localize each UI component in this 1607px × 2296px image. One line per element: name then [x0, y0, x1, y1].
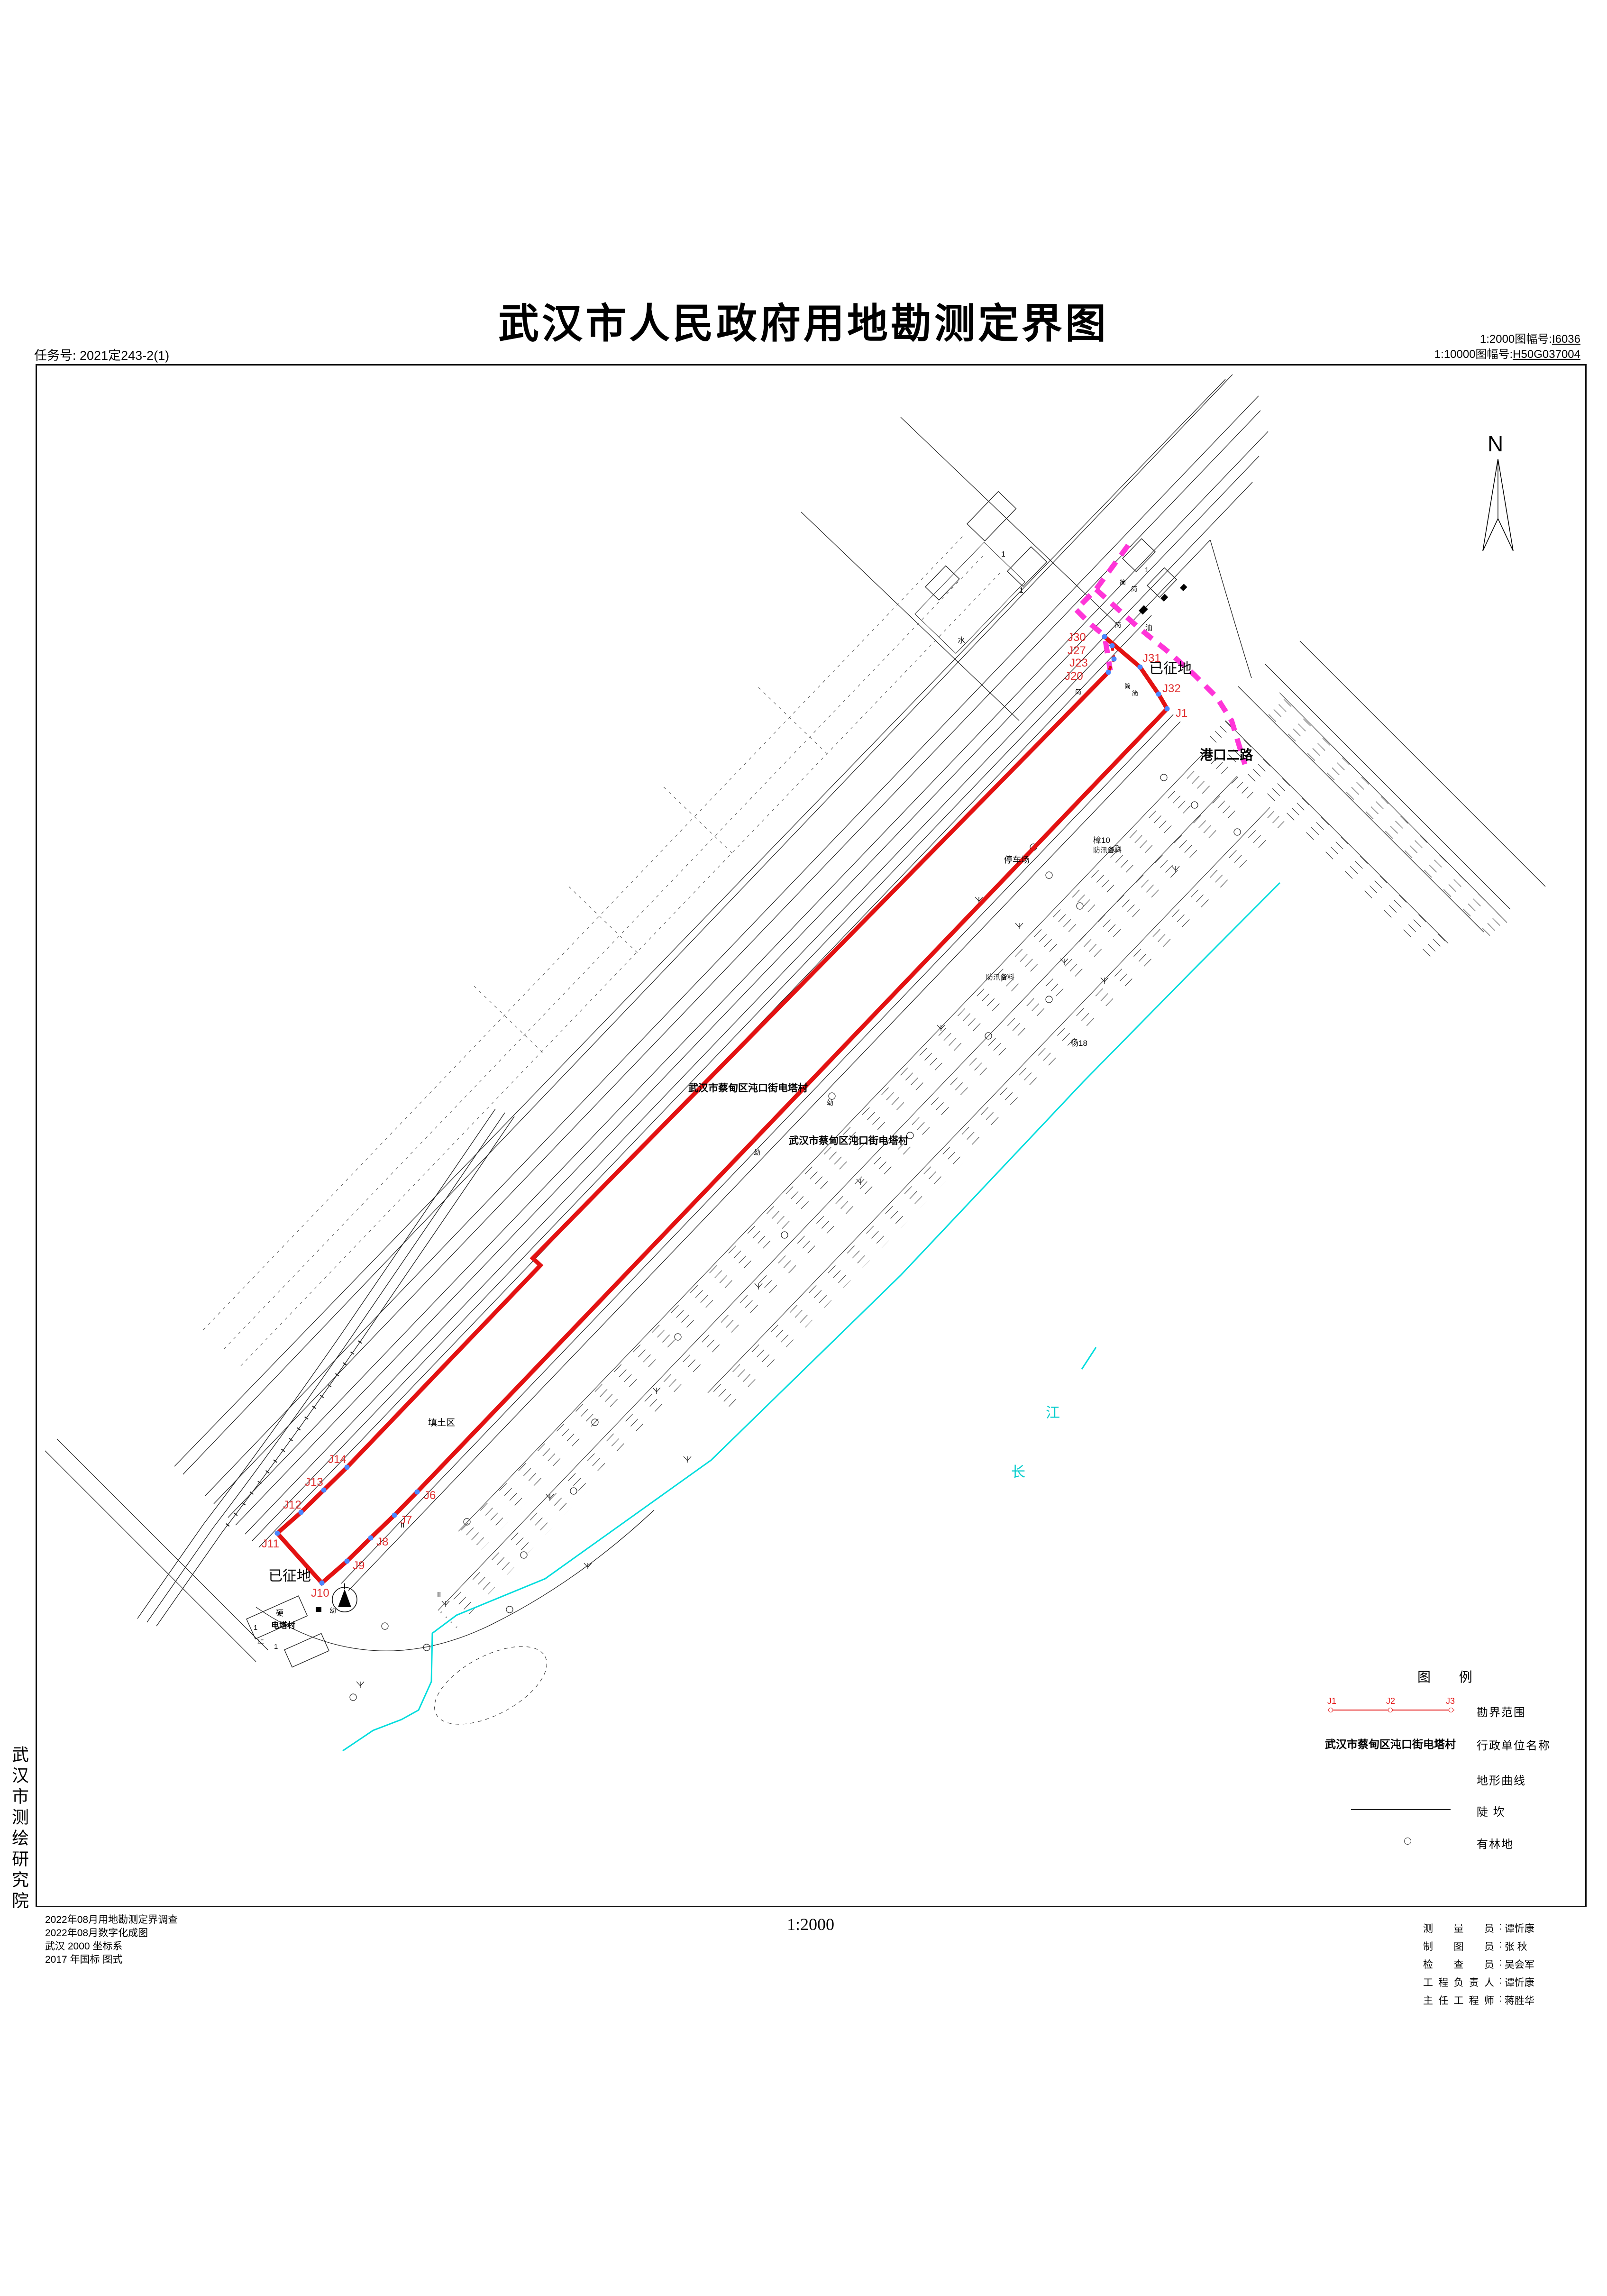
map-label: 简	[1075, 688, 1081, 695]
map-label: 简	[1115, 622, 1121, 629]
task-number: 任务号: 2021定243-2(1)	[34, 345, 169, 364]
boundary-vertex-label: J9	[353, 1559, 365, 1572]
map-label: 防汛备料	[1093, 846, 1122, 854]
boundary-vertex-label: J13	[305, 1476, 323, 1489]
map-label: 樟10	[1093, 836, 1110, 845]
survey-boundary	[277, 637, 1167, 1583]
north-arrow: N	[1483, 431, 1513, 551]
map-label: 1	[1001, 550, 1005, 558]
map-label: 武汉市蔡甸区沌口街电塔村	[688, 1082, 808, 1094]
boundary-vertex	[415, 1490, 420, 1495]
boundary-vertex	[1138, 665, 1143, 670]
map-label: 填土区	[428, 1418, 455, 1428]
map-label: 幼	[329, 1607, 336, 1614]
boundary-vertex	[1102, 634, 1107, 640]
map-label: 已征地	[1149, 661, 1192, 677]
map-label: 水	[958, 636, 965, 645]
organization-name: 武汉市测绘研究院	[7, 1746, 31, 1912]
sheet-numbers: 1:2000图幅号:I6036 1:10000图幅号:H50G037004	[1434, 332, 1580, 362]
map-label: 幼	[827, 1099, 833, 1107]
map-label: 已征地	[268, 1568, 311, 1584]
credit-row: 检 查 员:吴会军	[1423, 1957, 1584, 1971]
credit-row: 测 量 员:谭忻康	[1423, 1921, 1584, 1935]
map-label: II	[401, 1521, 404, 1529]
boundary-vertex-label: J11	[262, 1537, 279, 1550]
map-label: 简	[1131, 585, 1137, 593]
map-label: 止	[257, 1637, 264, 1645]
map-scale: 1:2000	[749, 1914, 872, 1934]
map-label: 电塔村	[271, 1620, 295, 1630]
map-label: 1	[274, 1643, 278, 1651]
boundary-vertex-label: J32	[1162, 682, 1181, 695]
boundary-vertex-label: J27	[1068, 644, 1086, 657]
map-label: 简	[1124, 683, 1131, 690]
sheet-number-10000: 1:10000图幅号:H50G037004	[1434, 347, 1580, 362]
boundary-vertex-label: J8	[376, 1536, 388, 1548]
boundary-sample: J1 J2 J3	[1327, 1701, 1460, 1720]
boundary-vertex	[392, 1513, 397, 1518]
boundary-vertex-label: J12	[283, 1499, 301, 1511]
boundary-vertex	[1112, 657, 1117, 662]
map-label: 杨18	[1070, 1039, 1087, 1048]
boundary-vertex	[1106, 670, 1111, 675]
sheet-number-2000: 1:2000图幅号:I6036	[1434, 332, 1580, 347]
map-label: 武汉市蔡甸区沌口街电塔村	[789, 1135, 908, 1146]
solid-structures	[316, 584, 1187, 1612]
survey-map-sheet: { "page": { "title": "武汉市人民政府用地勘测定界图", "…	[0, 0, 1607, 2296]
legend: 图 例 J1 J2 J3 勘界范围 武汉市蔡甸区沌口街电塔村 行政单位名称 地形…	[1313, 1667, 1588, 1857]
boundary-vertex	[275, 1531, 280, 1536]
boundary-vertex	[368, 1536, 374, 1541]
credits-block: 测 量 员:谭忻康制 图 员:张 秋检 查 员:吴会军工程负责人:谭忻康主任工程…	[1423, 1921, 1584, 2011]
map-label: 防汛备料	[986, 973, 1014, 981]
map-label: II	[437, 1591, 441, 1599]
boundary-points-layer: J1J32J31J30J27J23J20J14J13J12J11J10J9J8J…	[262, 631, 1187, 1600]
boundary-vertex	[1165, 706, 1170, 712]
boundary-vertex	[1110, 643, 1115, 649]
boundary-vertex	[1156, 692, 1161, 697]
boundary-vertex	[345, 1559, 350, 1564]
boundary-vertex-label: J10	[311, 1587, 329, 1600]
boundary-vertex-label: J6	[424, 1489, 436, 1502]
map-label: 江	[1046, 1405, 1060, 1421]
credit-row: 制 图 员:张 秋	[1423, 1939, 1584, 1953]
legend-title: 图 例	[1417, 1667, 1485, 1686]
slope-hatching	[438, 693, 1507, 1628]
map-label: 幼	[754, 1149, 760, 1156]
svg-text:N: N	[1488, 431, 1503, 456]
map-label: 停车场	[1004, 855, 1030, 865]
map-label: 1	[1145, 566, 1149, 574]
boundary-vertex	[320, 1581, 325, 1586]
boundary-vertex-label: J1	[1176, 707, 1187, 720]
map-label: 1	[1019, 586, 1023, 595]
boundary-vertex-label: J23	[1069, 657, 1088, 669]
survey-notes: 2022年08月用地勘测定界调查 2022年08月数字化成图 武汉 2000 坐…	[45, 1913, 178, 1967]
map-label: 硬	[276, 1610, 283, 1618]
buildings	[247, 492, 1177, 1740]
map-labels-layer: 已征地港口二路停车场樟10防汛备料防汛备料杨18武汉市蔡甸区沌口街电塔村武汉市蔡…	[254, 550, 1253, 1651]
map-label: 简	[1132, 690, 1138, 697]
map-label: 港口二路	[1200, 748, 1253, 762]
map-label: 油	[1145, 624, 1152, 632]
credit-row: 工程负责人:谭忻康	[1423, 1975, 1584, 1989]
boundary-vertex-label: J20	[1065, 670, 1083, 683]
page-title: 武汉市人民政府用地勘测定界图	[0, 290, 1607, 349]
boundary-vertex-label: J30	[1068, 631, 1086, 644]
map-label: 简	[1120, 579, 1126, 586]
map-label: 1	[254, 1624, 257, 1632]
credit-row: 主任工程师:蒋胜华	[1423, 1993, 1584, 2007]
map-label: 长	[1011, 1464, 1025, 1480]
boundary-vertex-label: J14	[328, 1453, 347, 1466]
